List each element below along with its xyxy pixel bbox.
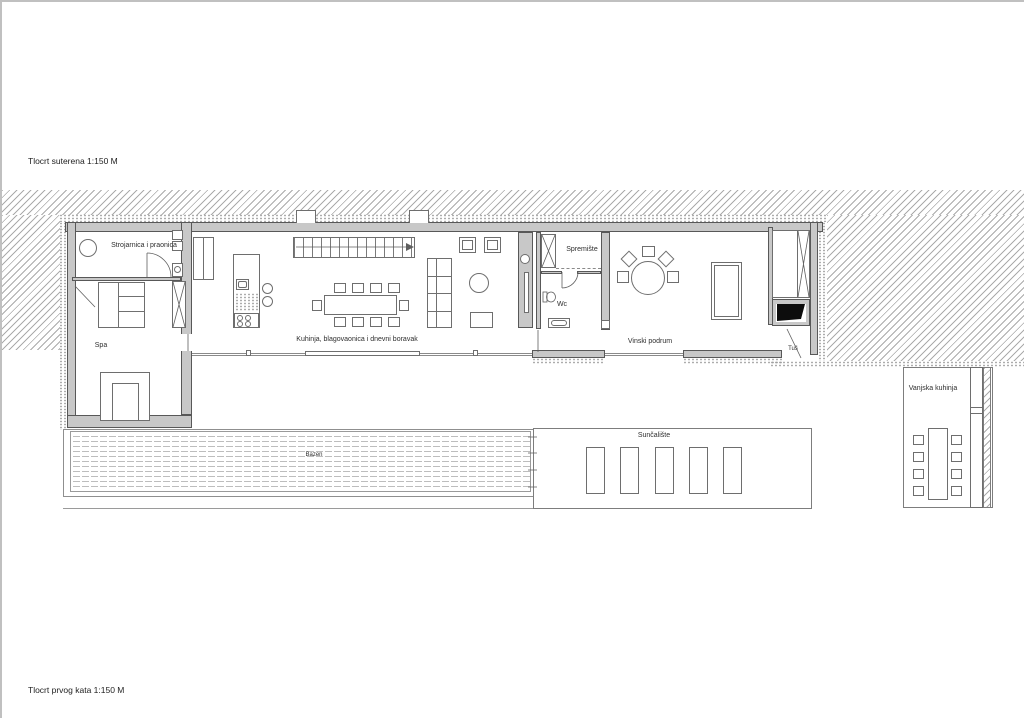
gravel-under-wall-b (683, 358, 782, 364)
pillar (601, 320, 610, 329)
room-label-storage: Spremište (566, 246, 598, 253)
page-edge-top (0, 0, 1024, 2)
lightwell-1 (296, 210, 316, 223)
burner (245, 321, 251, 327)
outdoor-table (928, 428, 948, 500)
wall-wc-divider-a (541, 271, 562, 274)
door-spa (75, 286, 95, 307)
sofa-cushion-line (427, 293, 452, 294)
cellar-chair (621, 251, 638, 268)
spa-bench (98, 282, 145, 328)
plan-title-basement: Tlocrt suterena 1:150 M (28, 157, 118, 166)
gravel-strip-east (818, 222, 827, 361)
door-arc-laundry (147, 253, 171, 277)
outdoor-kitchen-counter (970, 367, 983, 508)
coffee-table (469, 273, 489, 293)
wc-sink-basin (551, 320, 567, 326)
cellar-chair (617, 271, 629, 283)
outdoor-chair (951, 486, 962, 496)
spa-bench-divider (118, 282, 119, 328)
outdoor-chair (913, 486, 924, 496)
armchair-seat (487, 240, 498, 250)
wall-south-a (532, 350, 605, 358)
fire-box-inner (776, 304, 806, 322)
island-sink-basin (238, 281, 247, 288)
spa-tub-inner (112, 383, 139, 421)
mullion-post-2 (473, 350, 478, 356)
wall-south-b (683, 350, 782, 358)
washer-drum (174, 266, 181, 273)
room-label-sun-deck: Sunčalište (638, 432, 670, 439)
toilet-tank (543, 292, 547, 302)
burner (237, 321, 243, 327)
dining-chair (370, 317, 382, 327)
sun-lounger (689, 447, 708, 494)
dining-chair (352, 317, 364, 327)
dining-chair (388, 283, 400, 293)
bar-stool (262, 283, 273, 294)
wall-east (810, 222, 818, 355)
sun-lounger (620, 447, 639, 494)
dining-chair (370, 283, 382, 293)
outdoor-chair (913, 469, 924, 479)
dining-chair (312, 300, 322, 311)
deck-bottom-line (63, 508, 533, 509)
shaft-right-block (797, 230, 810, 298)
glass-facade-cellar (605, 353, 683, 356)
cellar-chair (658, 251, 675, 268)
wall-laundry-south (72, 277, 181, 281)
room-label-spa: Spa (95, 342, 107, 349)
outdoor-chair (951, 469, 962, 479)
room-label-wine-cellar: Vinski podrum (628, 338, 672, 345)
outdoor-kitchen-shelf (970, 407, 983, 414)
armchair-seat (462, 240, 473, 250)
spa-bench-line-1 (118, 296, 145, 297)
stove-flue (520, 254, 530, 264)
sun-lounger (655, 447, 674, 494)
terrain-hatch-top (2, 190, 1024, 215)
sofa-cushion-line (427, 311, 452, 312)
closet-right-block (772, 230, 798, 298)
cellar-chair (667, 271, 679, 283)
outdoor-chair (951, 452, 962, 462)
outdoor-chair (913, 452, 924, 462)
appliance-1 (172, 230, 183, 240)
lightwell-2 (409, 210, 429, 223)
gravel-under-wall-a (532, 358, 605, 364)
outdoor-chair (951, 435, 962, 445)
door-opening-spa (181, 334, 192, 351)
wall-wc-east (601, 232, 610, 330)
sofa-cushion-line (427, 276, 452, 277)
gravel-strip-west (59, 222, 67, 430)
room-label-outdoor-kitchen: Vanjska kuhinja (909, 385, 958, 392)
page-edge-left (0, 0, 2, 718)
dining-chair (399, 300, 409, 311)
outdoor-kitchen-wall (983, 367, 991, 508)
boiler-tank (79, 239, 97, 257)
plan-title-first-floor: Tlocrt prvog kata 1:150 M (28, 686, 124, 695)
outdoor-chair (913, 435, 924, 445)
room-label-pool: Bazen (305, 452, 322, 458)
staircase (293, 237, 415, 258)
pool-water (70, 431, 531, 492)
terrain-hatch-left (2, 215, 60, 350)
island-worktop (235, 293, 258, 311)
tall-cabinet-divider (203, 237, 204, 280)
room-label-wc: Wc (557, 301, 567, 308)
room-label-laundry: Strojarnica i praonica (111, 242, 177, 249)
room-label-living: Kuhinja, blagovaonica i dnevni boravak (296, 336, 417, 343)
spa-bench-line-2 (118, 311, 145, 312)
shaft-laundry (172, 281, 186, 328)
mullion-post-1 (246, 350, 251, 356)
wall-wc-divider-b (577, 271, 601, 274)
sliding-door-panel (305, 351, 420, 356)
dining-chair (388, 317, 400, 327)
media-shelf (524, 272, 529, 313)
ottoman (470, 312, 493, 328)
sun-lounger (586, 447, 605, 494)
gravel-strip-north (59, 214, 828, 222)
cellar-chair (642, 246, 655, 257)
sun-lounger (723, 447, 742, 494)
terrain-hatch-right (827, 215, 1024, 361)
dining-chair (352, 283, 364, 293)
floor-plan-sheet: Tlocrt suterena 1:150 M Tlocrt prvog kat… (0, 0, 1024, 718)
shower-partition (787, 329, 801, 358)
wine-rack-inner (714, 265, 739, 317)
dining-chair (334, 317, 346, 327)
storage-shelf-dashed (556, 268, 601, 269)
wall-west (67, 222, 76, 428)
dining-table (324, 295, 397, 315)
room-label-shower: Tuš (788, 346, 798, 352)
shaft-wc (541, 234, 556, 268)
dining-chair (334, 283, 346, 293)
cellar-round-table (631, 261, 665, 295)
door-arc-wc (562, 272, 578, 288)
toilet-bowl (547, 292, 556, 302)
bar-stool (262, 296, 273, 307)
